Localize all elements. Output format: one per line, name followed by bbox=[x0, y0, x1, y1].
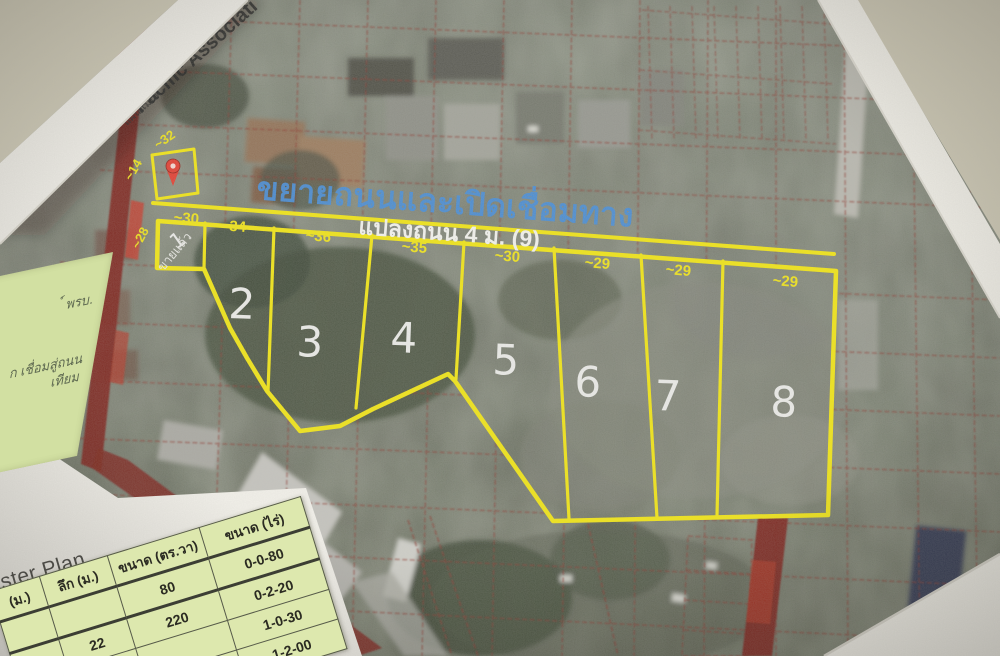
photographed-site-plan: ขยายถนนและเปิดเชื่อมทาง แปลงถนน 4 ม. (9)… bbox=[0, 0, 1000, 656]
